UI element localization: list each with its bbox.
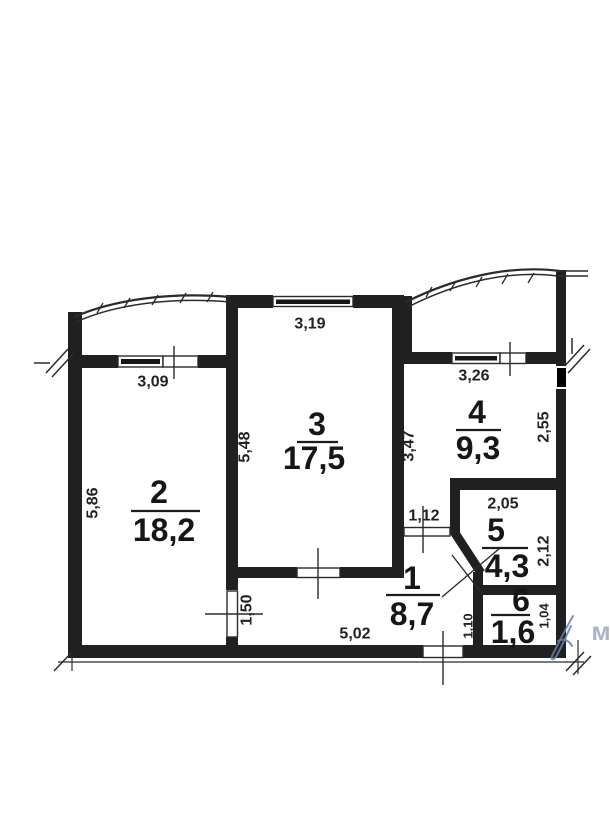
window-room4-glass xyxy=(455,356,497,361)
wall-room5-left xyxy=(450,478,460,532)
wall-left xyxy=(68,312,82,658)
dim-room3-depth: 5,48 xyxy=(237,431,254,462)
dim-room4-depth: 3,47 xyxy=(401,430,418,461)
room-1-area: 8,7 xyxy=(390,596,434,632)
wall-bottom-left xyxy=(68,645,423,658)
dim-tick-bottom-right-2 xyxy=(573,656,591,675)
dim-room5-width: 2,05 xyxy=(487,496,518,513)
dim-room2-door-width: 1,50 xyxy=(239,594,256,625)
wall-room4-top-right xyxy=(526,352,566,364)
room-2-number: 2 xyxy=(150,474,168,510)
wall-balcony-right-edge xyxy=(404,296,412,352)
watermark-letter: м xyxy=(591,616,610,646)
dim-hallway-length: 5,02 xyxy=(339,626,370,643)
room-3-area: 17,5 xyxy=(283,440,345,476)
dim-room5-depth: 2,12 xyxy=(536,535,553,566)
room-6-number: 6 xyxy=(512,582,530,618)
balcony-door-room2 xyxy=(163,356,198,367)
dim-room3-width: 3,19 xyxy=(294,316,325,333)
dim-room6-depth: 1,04 xyxy=(537,603,552,629)
balcony-door-room4 xyxy=(500,353,526,364)
wall-room2-door-stub xyxy=(226,637,238,647)
dim-room2-width: 3,09 xyxy=(137,374,168,391)
scanned-floor-plan-page: 2 18,2 3 17,5 4 9,3 5 4,3 6 1,6 1 8,7 3,… xyxy=(0,0,610,832)
room-3-number: 3 xyxy=(308,406,326,442)
door-room4-hall xyxy=(404,528,450,537)
room-1-number: 1 xyxy=(403,560,421,596)
wall-room2-top-left xyxy=(82,355,118,368)
room-2-area: 18,2 xyxy=(133,512,195,548)
wall-room2-top-right xyxy=(198,355,228,368)
wall-room4-top-left xyxy=(404,352,452,364)
room-6-area: 1,6 xyxy=(491,614,535,650)
wall-room4-bottom xyxy=(450,478,566,490)
room-5-number: 5 xyxy=(487,512,505,548)
vent-shaft-marker xyxy=(557,368,566,387)
room-4-area: 9,3 xyxy=(456,430,500,466)
window-room2-glass xyxy=(121,359,160,364)
room-4-number: 4 xyxy=(468,394,486,430)
wall-room5-chamfer xyxy=(453,530,481,573)
wall-room3-bottom-right xyxy=(340,567,392,578)
wall-room3-top-left xyxy=(226,295,273,308)
dim-room6-left-side: 1,10 xyxy=(461,613,476,638)
dim-room4-door-width: 1,12 xyxy=(408,508,439,525)
wall-room3-bottom-left xyxy=(236,567,297,578)
room-5-area: 4,3 xyxy=(485,548,529,584)
dim-room2-depth: 5,86 xyxy=(85,487,102,518)
dim-room4-width: 3,26 xyxy=(458,368,489,385)
balconies xyxy=(74,269,588,322)
break-left-1 xyxy=(46,349,68,373)
wall-right xyxy=(556,270,566,658)
window-room3-glass xyxy=(276,300,350,305)
floor-plan-canvas: 2 18,2 3 17,5 4 9,3 5 4,3 6 1,6 1 8,7 3,… xyxy=(0,0,610,832)
balcony-right-glazing-ticks xyxy=(426,273,534,297)
dim-room4-right-side: 2,55 xyxy=(536,411,553,442)
